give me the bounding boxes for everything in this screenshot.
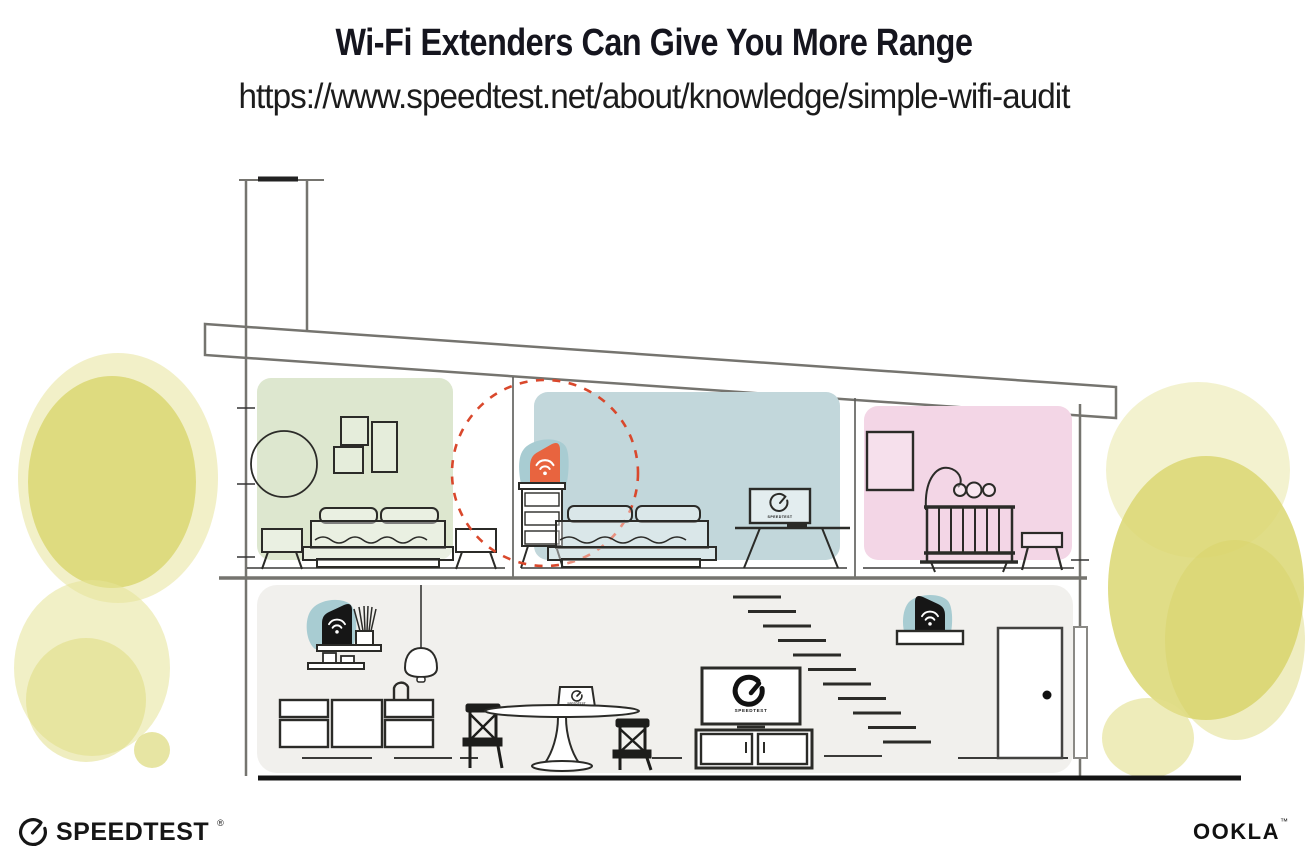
right-bush xyxy=(1102,382,1305,778)
nightstand-left xyxy=(262,529,302,569)
door-knob xyxy=(1043,691,1052,700)
speedtest-wordmark: SPEEDTEST xyxy=(56,818,209,847)
tv-media-unit: SPEEDTEST xyxy=(696,668,812,768)
infographic-page: Wi-Fi Extenders Can Give You More Range … xyxy=(0,0,1308,861)
footer: SPEEDTEST ® OOKLA ™ xyxy=(0,801,1308,861)
source-url: https://www.speedtest.net/about/knowledg… xyxy=(33,77,1276,117)
picture-frame xyxy=(867,432,913,490)
bed xyxy=(303,508,453,567)
chimney xyxy=(239,179,324,335)
speedtest-logo: SPEEDTEST ® xyxy=(18,817,224,847)
tv-brand-label: SPEEDTEST xyxy=(735,708,768,713)
house-illustration: SPEEDTEST xyxy=(0,0,1308,861)
front-door xyxy=(998,628,1062,758)
downspout xyxy=(1074,627,1087,758)
bed xyxy=(548,506,716,567)
speedtest-gauge-icon xyxy=(18,817,48,847)
page-title: Wi-Fi Extenders Can Give You More Range xyxy=(98,22,1210,65)
ookla-logo: OOKLA ™ xyxy=(1193,819,1288,845)
registered-mark: ® xyxy=(217,818,224,828)
header: Wi-Fi Extenders Can Give You More Range … xyxy=(0,22,1308,117)
ookla-wordmark: OOKLA xyxy=(1193,819,1280,845)
left-bush xyxy=(14,353,218,768)
tv-brand-label: SPEEDTEST xyxy=(768,515,793,519)
trademark-mark: ™ xyxy=(1280,817,1288,826)
